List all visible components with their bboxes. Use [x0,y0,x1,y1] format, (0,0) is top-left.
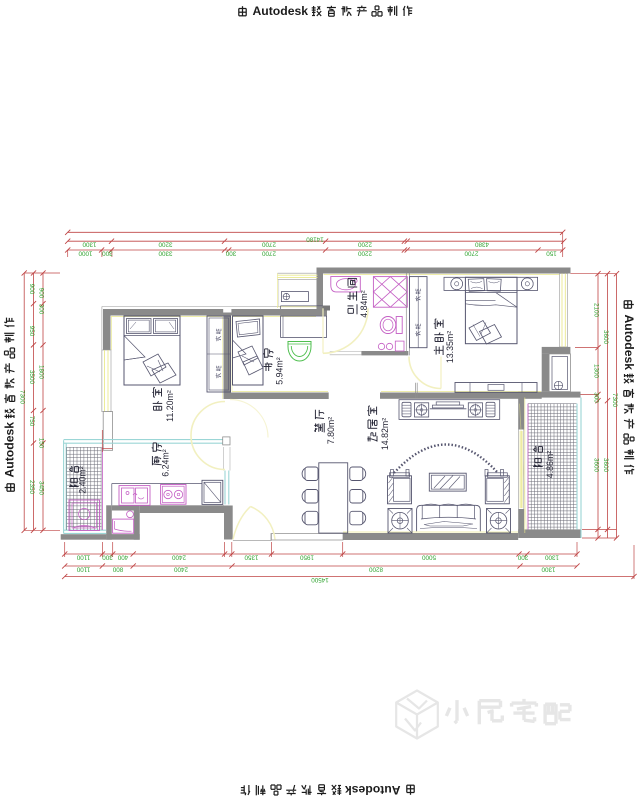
svg-text:2700: 2700 [464,249,479,256]
svg-text:950: 950 [28,326,35,337]
svg-text:300: 300 [225,249,236,256]
svg-text:1100: 1100 [76,565,90,572]
svg-text:300: 300 [102,553,113,560]
svg-text:4380: 4380 [475,241,490,248]
svg-text:6.24m²: 6.24m² [161,449,171,476]
svg-text:900: 900 [28,284,35,295]
svg-text:2.40m²: 2.40m² [78,466,88,493]
svg-text:300: 300 [102,249,113,256]
svg-text:Autodesk: Autodesk [622,315,636,371]
svg-text:3200: 3200 [158,241,173,248]
svg-text:2700: 2700 [262,249,277,256]
svg-text:1800: 1800 [37,365,44,380]
svg-text:5.94m²: 5.94m² [275,357,285,384]
svg-text:3600: 3600 [602,330,609,345]
svg-text:750: 750 [28,416,35,427]
svg-text:1300: 1300 [592,364,599,379]
svg-text:2100: 2100 [592,303,599,318]
svg-text:3300: 3300 [158,249,173,256]
svg-text:Autodesk: Autodesk [3,422,17,478]
svg-text:400: 400 [117,553,128,560]
svg-text:300: 300 [517,553,528,560]
svg-text:7300: 7300 [611,393,618,408]
svg-text:2400: 2400 [174,565,189,572]
svg-text:14.82m²: 14.82m² [380,418,390,450]
svg-text:13.35m²: 13.35m² [445,331,455,363]
svg-text:2400: 2400 [172,553,187,560]
svg-text:1300: 1300 [541,565,556,572]
svg-text:7.80m²: 7.80m² [326,417,336,444]
svg-text:1300: 1300 [545,553,560,560]
svg-text:2700: 2700 [262,241,277,248]
svg-text:11.20m²: 11.20m² [165,390,175,422]
svg-text:150: 150 [546,249,557,256]
svg-text:4.86m²: 4.86m² [545,451,555,478]
svg-text:Autodesk: Autodesk [345,783,401,797]
svg-text:300: 300 [592,392,599,403]
svg-text:14500: 14500 [311,576,329,583]
svg-text:14180: 14180 [306,235,324,242]
svg-text:7300: 7300 [18,390,25,405]
svg-text:2350: 2350 [28,480,35,495]
svg-text:Autodesk: Autodesk [253,4,309,18]
svg-text:800: 800 [112,565,123,572]
svg-text:900: 900 [37,288,44,299]
svg-text:2200: 2200 [358,249,373,256]
svg-text:1950: 1950 [300,553,315,560]
svg-text:3500: 3500 [28,370,35,385]
svg-text:8200: 8200 [369,565,384,572]
svg-text:1100: 1100 [76,553,90,560]
svg-text:3450: 3450 [37,481,44,496]
svg-text:2200: 2200 [358,241,373,248]
svg-text:3600: 3600 [592,458,599,473]
svg-text:1300: 1300 [82,241,97,248]
svg-text:3600: 3600 [602,458,609,473]
svg-text:1000: 1000 [78,249,93,256]
svg-text:5000: 5000 [422,553,437,560]
svg-text:150: 150 [37,438,44,449]
svg-text:1350: 1350 [244,553,259,560]
svg-text:4.84m²: 4.84m² [359,290,369,317]
svg-text:300: 300 [37,304,44,315]
